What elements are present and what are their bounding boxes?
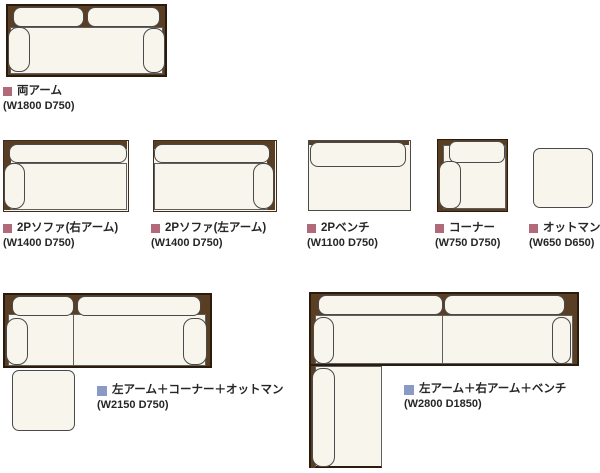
item-name: 2Pソファ(右アーム) [17,222,118,235]
bullet-icon [151,224,160,233]
item-name: オットマン [543,222,600,235]
item-name: 左アーム＋コーナー＋オットマン [112,384,283,397]
seat [10,163,127,210]
label-combo-leftarm-rightarm-bench: 左アーム＋右アーム＋ベンチ (W2800 D1850) [404,383,566,411]
seat [154,163,268,210]
back-cushion [444,295,565,315]
back-cushion [318,295,443,315]
bullet-icon [307,224,316,233]
label-combo-leftarm-corner-ottoman: 左アーム＋コーナー＋オットマン (W2150 D750) [97,384,283,412]
item-dimensions: (W1800 D750) [3,100,75,113]
item-dimensions: (W1400 D750) [3,237,118,250]
item-dimensions: (W2150 D750) [97,399,283,412]
left-arm-cushion [313,317,334,364]
label-sofa-2p-left-arm: 2Pソファ(左アーム) (W1400 D750) [151,222,266,250]
sofa-lineup-diagram: 両アーム (W1800 D750) 2Pソファ(右アーム) (W1400 D75… [0,0,600,473]
seat-left-section [315,315,443,364]
combo1-ottoman [12,370,75,431]
item-name: 両アーム [17,85,62,98]
bullet-icon [3,87,12,96]
bullet-icon [3,224,12,233]
item-dimensions: (W1100 D750) [307,237,378,250]
item-name: コーナー [449,222,495,235]
label-corner: コーナー (W750 D750) [435,222,500,250]
combo2-bench-cushion [312,368,335,467]
seat [10,27,163,74]
right-arm-cushion [253,163,274,209]
sofa-2p-left-arm-diagram [153,140,277,212]
combo-leftarm-corner-ottoman-diagram [3,293,212,368]
left-arm-cushion [8,27,30,72]
item-name: 左アーム＋右アーム＋ベンチ [419,383,566,396]
label-sofa-2p-right-arm: 2Pソファ(右アーム) (W1400 D750) [3,222,118,250]
both-arms-sofa-diagram [6,4,167,77]
combo-leftarm-rightarm-bench-diagram [309,292,579,366]
item-dimensions: (W2800 D1850) [404,398,566,411]
item-name: 2Pソファ(左アーム) [165,222,266,235]
back-cushion [154,144,270,163]
right-arm-cushion [552,317,571,364]
bullet-icon [435,224,444,233]
left-arm-cushion [6,318,28,365]
back-cushion [310,142,406,167]
ottoman-diagram [533,148,593,208]
bullet-icon [97,386,107,396]
item-name: 2Pベンチ [321,222,370,235]
right-arm-cushion [143,28,165,73]
right-arm-cushion [183,318,207,365]
corner-diagram [437,139,508,212]
item-dimensions: (W1400 D750) [151,237,266,250]
label-both-arms: 両アーム (W1800 D750) [3,85,75,113]
back-cushion [87,7,160,27]
label-bench-2p: 2Pベンチ (W1100 D750) [307,222,378,250]
bench-2p-diagram [308,140,411,211]
bullet-icon [529,224,538,233]
back-cushion [12,296,74,316]
back-cushion [9,144,127,163]
back-cushion [449,141,505,163]
bullet-icon [404,385,414,395]
back-cushion [13,7,84,27]
label-ottoman: オットマン (W650 D650) [529,222,600,250]
item-dimensions: (W650 D650) [529,237,600,250]
sofa-2p-right-arm-diagram [3,140,129,212]
item-dimensions: (W750 D750) [435,237,500,250]
back-cushion [77,296,201,316]
left-arm-cushion [439,161,461,209]
left-arm-cushion [4,163,25,209]
